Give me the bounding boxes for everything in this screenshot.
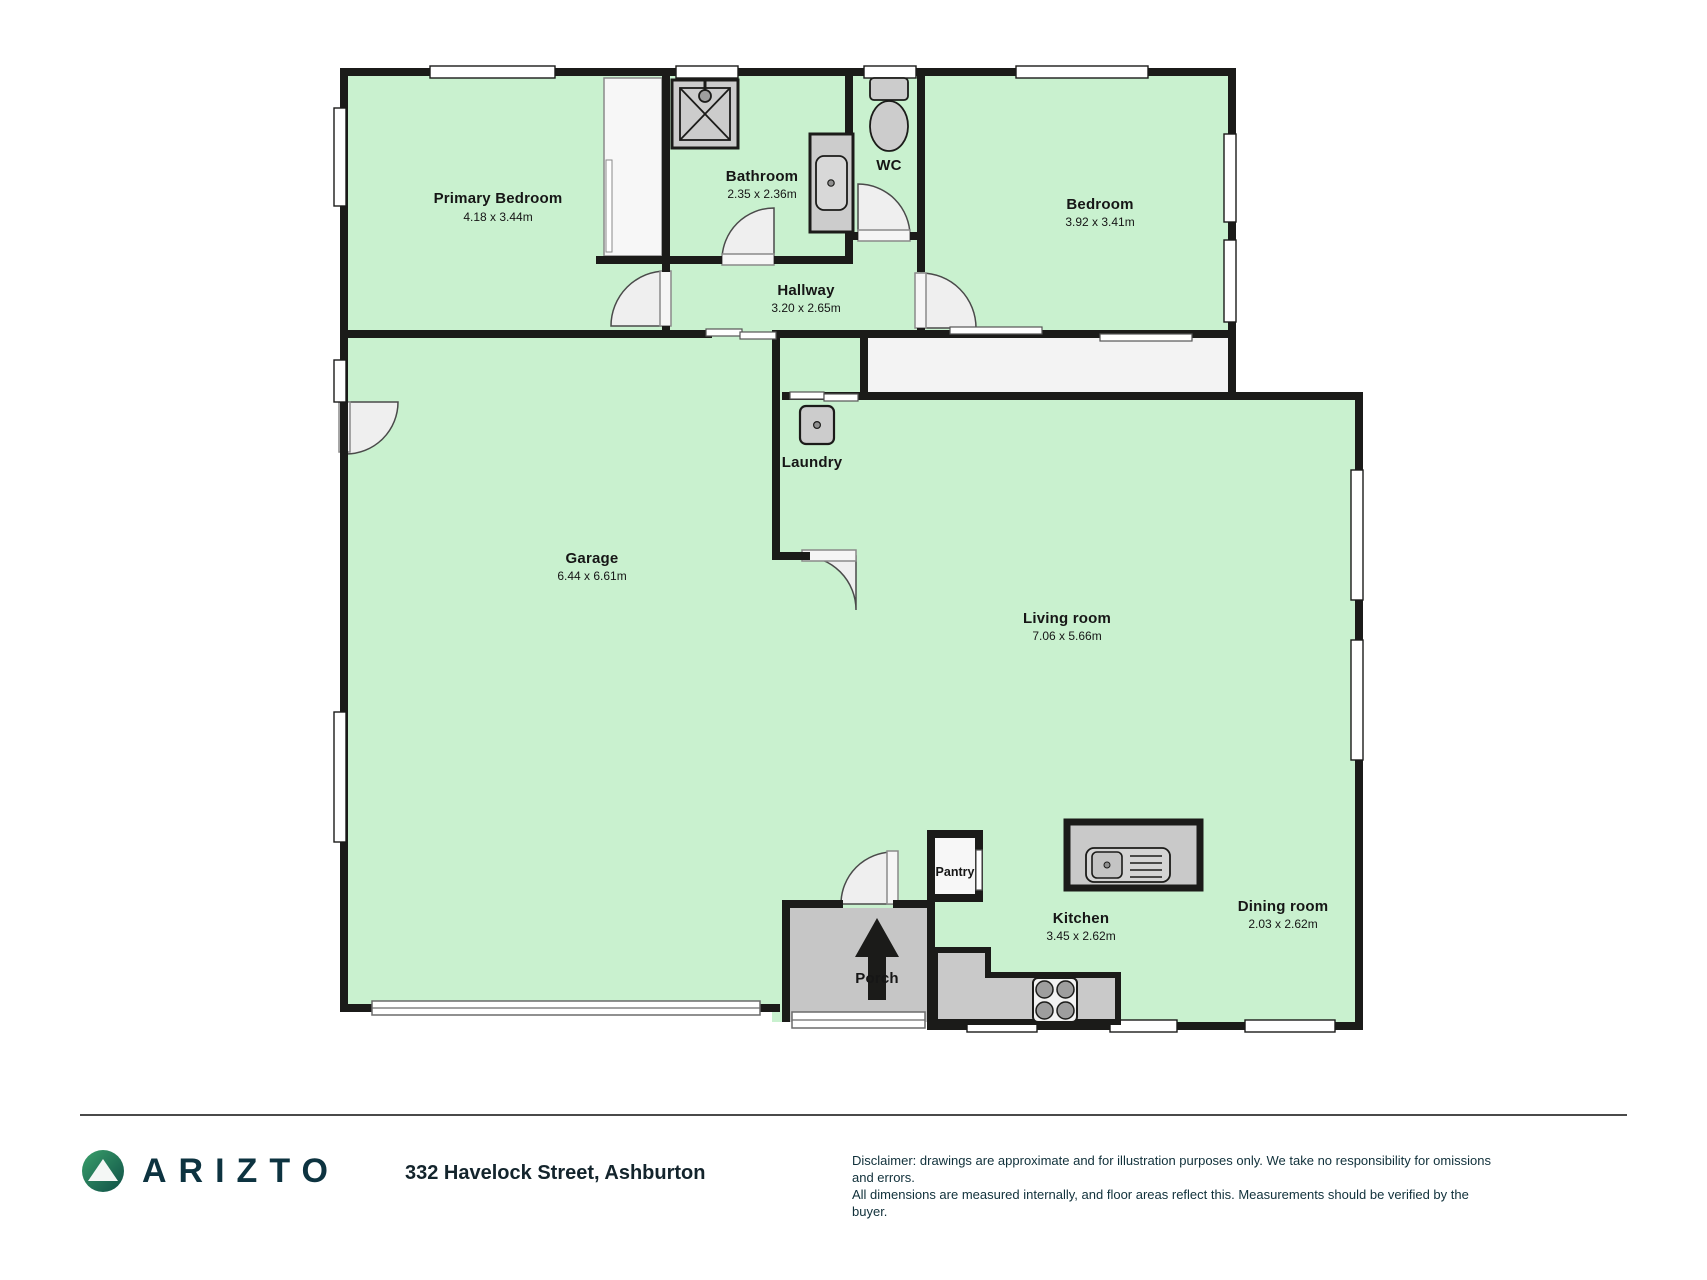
- window-bedroom-top: [1016, 66, 1148, 78]
- garage-slider-panel-1: [706, 329, 742, 336]
- wall-strip-left: [860, 330, 868, 398]
- wall-garage-top-right: [772, 330, 860, 338]
- window-living-right-2: [1351, 640, 1363, 760]
- island-sink-fixture: [1067, 822, 1200, 888]
- label-pantry: Pantry: [936, 865, 975, 879]
- wall-garage-right: [772, 330, 780, 552]
- door-leaf-primary-bedroom: [660, 271, 671, 326]
- stove-fixture: [1033, 978, 1077, 1022]
- label-porch: Porch: [855, 970, 899, 987]
- shower-fixture: [672, 78, 738, 148]
- door-leaf-wc: [858, 230, 910, 241]
- hall-living-slider-panel-1: [790, 392, 824, 399]
- wall-porch-left: [782, 900, 790, 1022]
- dims-bedroom: 3.92 x 3.41m: [1065, 215, 1134, 229]
- label-dining-room: Dining room: [1238, 898, 1329, 915]
- wall-pantry-bottom: [927, 894, 983, 902]
- label-hallway: Hallway: [777, 282, 835, 299]
- dims-living-room: 7.06 x 5.66m: [1032, 629, 1101, 643]
- vanity-sink-fixture: [810, 134, 853, 232]
- wall-under-wardrobe: [596, 256, 670, 264]
- brand-lockup: ARIZTO: [80, 1148, 340, 1194]
- wall-right-top-block: [1228, 68, 1236, 400]
- footer: ARIZTO 332 Havelock Street, Ashburton Di…: [0, 1130, 1707, 1250]
- dims-hallway: 3.20 x 2.65m: [771, 301, 840, 315]
- toilet-fixture: [870, 78, 908, 151]
- label-bedroom: Bedroom: [1066, 196, 1133, 213]
- label-kitchen: Kitchen: [1053, 910, 1109, 927]
- pantry-slider: [976, 850, 982, 890]
- label-bathroom: Bathroom: [726, 168, 798, 185]
- label-laundry: Laundry: [782, 454, 843, 471]
- wall-pantry-top: [927, 830, 983, 838]
- bedroom-wardrobe-strip: [868, 338, 1228, 392]
- window-garage-left-upper: [334, 360, 346, 402]
- footer-divider: [80, 1114, 1627, 1116]
- window-primary-top: [430, 66, 555, 78]
- door-leaf-front-entry: [887, 851, 898, 904]
- window-dining-bottom: [1245, 1020, 1335, 1032]
- window-living-right-1: [1351, 470, 1363, 600]
- hall-living-slider-panel-2: [824, 394, 858, 401]
- primary-wardrobe-slider: [606, 160, 612, 252]
- window-bedroom-right-1: [1224, 134, 1236, 222]
- door-leaf-bathroom: [722, 254, 774, 265]
- dims-primary-bedroom: 4.18 x 3.44m: [463, 210, 532, 224]
- wall-primary-bath-upper: [662, 68, 670, 272]
- door-leaf-bedroom: [915, 273, 926, 328]
- label-primary-bedroom: Primary Bedroom: [434, 190, 563, 207]
- window-bedroom-right-2: [1224, 240, 1236, 322]
- wall-wc-bottom-right: [910, 232, 925, 240]
- brand-name: ARIZTO: [142, 1152, 340, 1191]
- wardrobe-slider-mark-1: [950, 327, 1042, 334]
- label-living-room: Living room: [1023, 610, 1111, 627]
- door-leaf-hall-living: [802, 550, 856, 561]
- floorplan-drawing: Primary Bedroom 4.18 x 3.44m Bathroom 2.…: [0, 0, 1707, 1280]
- property-address: 332 Havelock Street, Ashburton: [405, 1162, 705, 1185]
- dims-kitchen: 3.45 x 2.62m: [1046, 929, 1115, 943]
- wall-laundry-jog: [772, 552, 810, 560]
- dims-dining-room: 2.03 x 2.62m: [1248, 917, 1317, 931]
- arizto-logo-icon: [80, 1148, 126, 1194]
- wall-garage-top-left: [340, 330, 712, 338]
- wall-wc-bedroom-upper: [917, 68, 925, 272]
- dims-garage: 6.44 x 6.61m: [557, 569, 626, 583]
- wardrobe-slider-mark-2: [1100, 334, 1192, 341]
- window-wc-top: [864, 66, 916, 78]
- disclaimer-text: Disclaimer: drawings are approximate and…: [852, 1152, 1492, 1220]
- porch-slab: [790, 908, 927, 1022]
- window-bathroom-top: [676, 66, 738, 78]
- disclaimer-line-1: Disclaimer: drawings are approximate and…: [852, 1152, 1492, 1186]
- wall-porch-top-left: [782, 900, 843, 908]
- label-garage: Garage: [566, 550, 619, 567]
- wall-bathroom-bottom-left: [662, 256, 722, 264]
- floorplan-page: Primary Bedroom 4.18 x 3.44m Bathroom 2.…: [0, 0, 1707, 1280]
- wall-left: [340, 68, 348, 1012]
- wall-living-top: [782, 392, 1363, 400]
- dims-bathroom: 2.35 x 2.36m: [727, 187, 796, 201]
- window-garage-left-lower: [334, 712, 346, 842]
- primary-wardrobe: [604, 78, 662, 256]
- laundry-tub-fixture: [800, 406, 834, 444]
- window-primary-left: [334, 108, 346, 206]
- garage-slider-panel-2: [740, 332, 776, 339]
- disclaimer-line-2: All dimensions are measured internally, …: [852, 1186, 1492, 1220]
- label-wc: WC: [876, 157, 901, 174]
- room-garage-floor: [348, 330, 772, 1004]
- wall-bathroom-bottom-right: [774, 256, 853, 264]
- room-laundry-nook-floor: [772, 330, 860, 400]
